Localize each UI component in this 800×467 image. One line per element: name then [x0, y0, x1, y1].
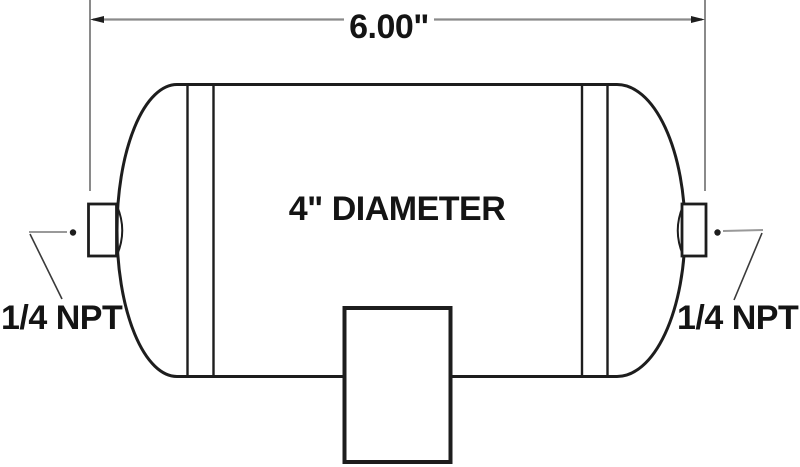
right-leader-horizontal-line — [723, 230, 763, 231]
right-port-fitting — [682, 204, 706, 256]
left-leader-dot-icon — [70, 229, 76, 235]
left-port-label: 1/4 NPT — [1, 299, 123, 337]
diameter-label: 4" DIAMETER — [289, 190, 506, 228]
length-dimension-label: 6.00" — [349, 8, 429, 46]
right-leader-dot-icon — [714, 229, 720, 235]
tank-dimension-diagram: 6.00" 4" DIAMETER 1/4 NPT 1/4 NPT — [0, 0, 800, 467]
left-port-fitting — [89, 204, 117, 256]
right-port-label: 1/4 NPT — [677, 299, 799, 337]
diagram-svg: 6.00" 4" DIAMETER 1/4 NPT 1/4 NPT — [0, 0, 800, 467]
bottom-mount-block — [345, 308, 451, 462]
